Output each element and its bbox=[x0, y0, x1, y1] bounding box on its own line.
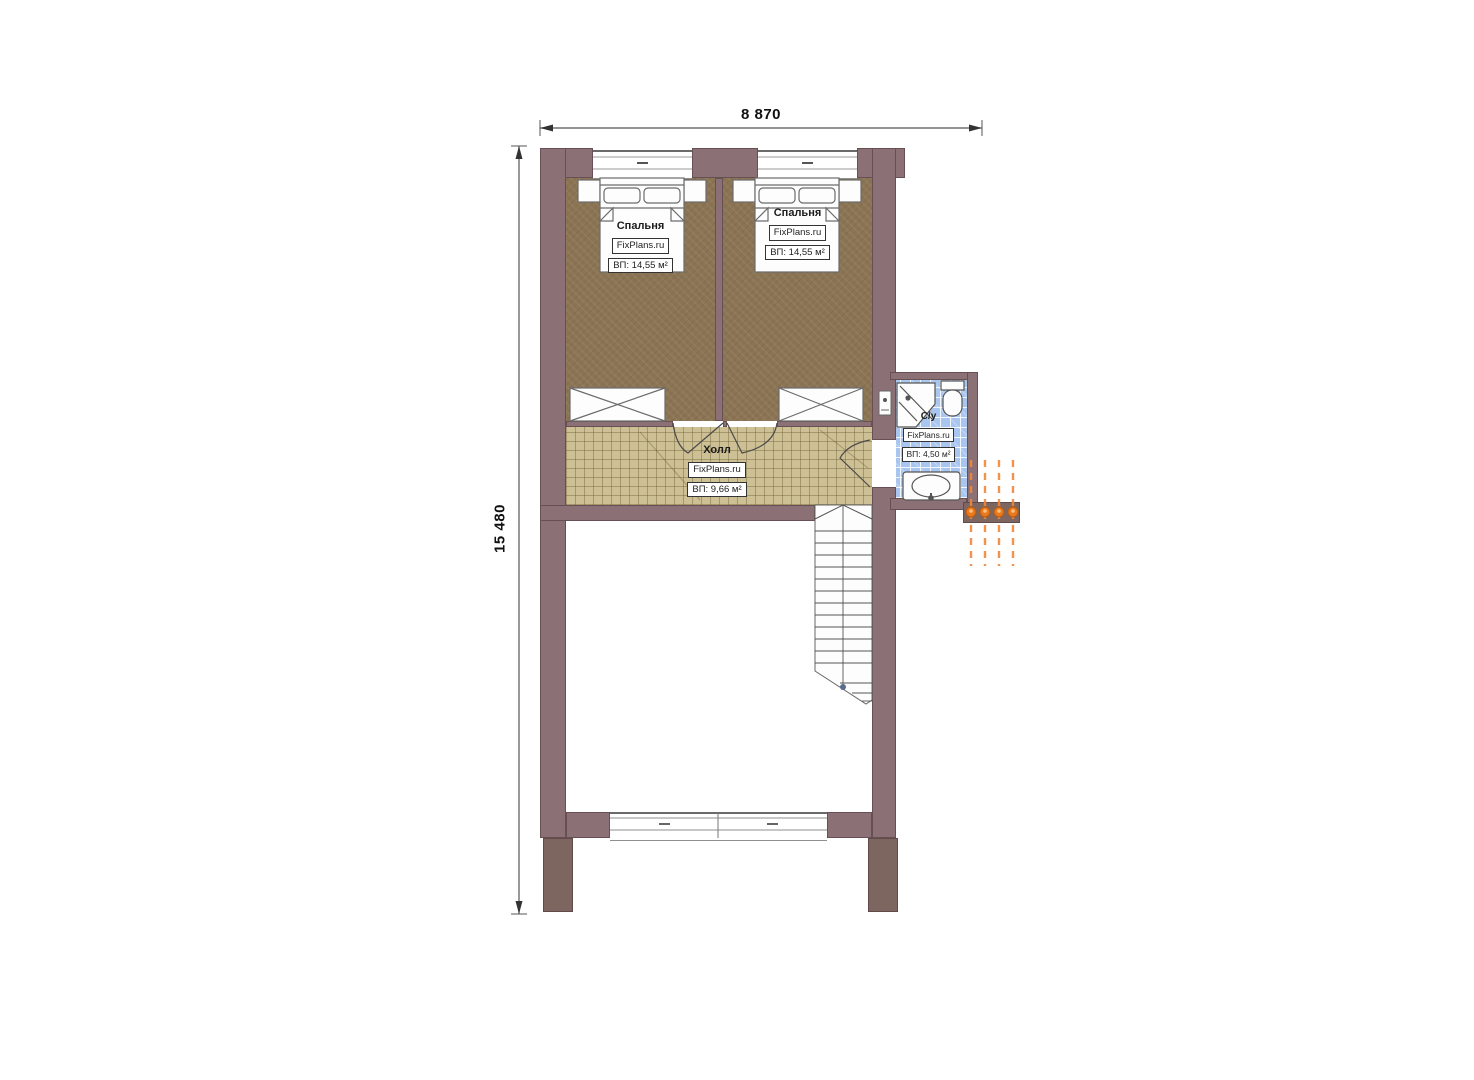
floor-plan-canvas: 8 870 15 480 Спальня FixPlans.ru ВП: 14,… bbox=[0, 0, 1474, 1080]
dimension-line-left bbox=[511, 146, 527, 914]
bathroom-name: С/у bbox=[890, 411, 967, 423]
hall-label: Холл FixPlans.ru ВП: 9,66 м² bbox=[637, 444, 797, 497]
bathroom-area: ВП: 4,50 м² bbox=[902, 447, 954, 462]
bedroom-right-name: Спальня bbox=[723, 207, 872, 220]
wall-bedrooms-hall-c bbox=[777, 421, 872, 427]
bedroom-left-area: ВП: 14,55 м² bbox=[608, 258, 673, 274]
hall-area: ВП: 9,66 м² bbox=[687, 482, 746, 498]
wall-bedroom-divider bbox=[715, 178, 723, 421]
wall-hall-bottom bbox=[540, 505, 815, 521]
column-bottom-left bbox=[543, 838, 573, 912]
window-top-left bbox=[593, 150, 692, 179]
wall-left bbox=[540, 148, 566, 838]
bedroom-left-name: Спальня bbox=[566, 220, 715, 233]
stairs-icon bbox=[815, 505, 872, 704]
bedroom-right-brand: FixPlans.ru bbox=[769, 225, 827, 241]
wall-right-lower bbox=[872, 487, 896, 838]
wall-right-upper bbox=[872, 148, 896, 440]
window-top-right bbox=[758, 150, 857, 179]
wall-bath-top bbox=[890, 372, 978, 380]
pergola-bar bbox=[963, 502, 1020, 523]
column-bottom-right bbox=[868, 838, 898, 912]
wall-bath-bottom bbox=[890, 498, 967, 510]
wall-bottom-stub-left bbox=[566, 812, 610, 838]
bedroom-right-label: Спальня FixPlans.ru ВП: 14,55 м² bbox=[723, 207, 872, 260]
hall-brand: FixPlans.ru bbox=[688, 462, 746, 478]
dimension-width-label: 8 870 bbox=[540, 106, 982, 123]
wall-bottom-stub-right bbox=[827, 812, 872, 838]
bathroom-brand: FixPlans.ru bbox=[903, 428, 954, 443]
wall-bath-right bbox=[967, 372, 978, 510]
bedroom-right-area: ВП: 14,55 м² bbox=[765, 245, 830, 261]
bathroom-label: С/у FixPlans.ru ВП: 4,50 м² bbox=[890, 411, 967, 462]
window-bottom bbox=[610, 812, 827, 841]
bedroom-left-floor bbox=[566, 178, 715, 421]
dimension-height-label: 15 480 bbox=[492, 469, 509, 589]
bedroom-left-label: Спальня FixPlans.ru ВП: 14,55 м² bbox=[566, 220, 715, 273]
wall-bedrooms-hall-b bbox=[723, 421, 727, 427]
wall-bedrooms-hall-a bbox=[566, 421, 673, 427]
bedroom-left-brand: FixPlans.ru bbox=[612, 238, 670, 254]
hall-name: Холл bbox=[637, 444, 797, 457]
wall-top-pier-mid bbox=[692, 148, 758, 178]
